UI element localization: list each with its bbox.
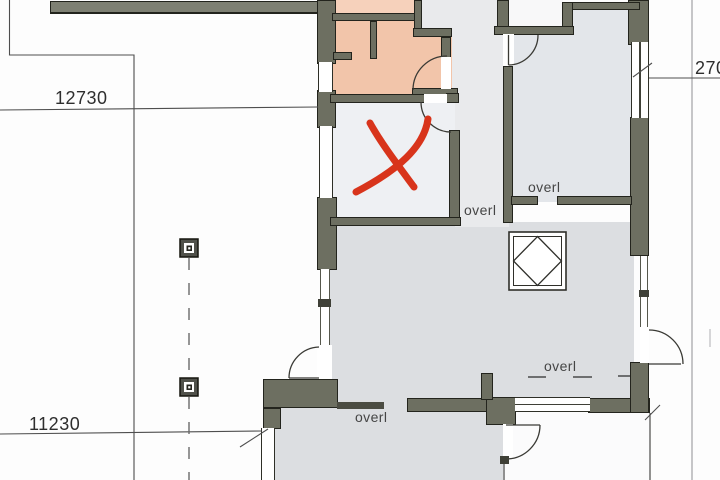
lintel-label-bottom-center: overl [355, 409, 387, 425]
site-line-top-left [10, 0, 135, 480]
door-arc-west [289, 347, 319, 378]
column-symbol-1 [180, 239, 198, 257]
door-arc-entrance [413, 56, 447, 90]
corner-tick-bottom-right [645, 405, 660, 420]
jamb-dash-bottom-right [500, 456, 509, 464]
door-arc-upper-right [509, 35, 539, 65]
column-symbol-2 [180, 378, 198, 396]
lintel-dashes [528, 376, 630, 377]
skylight-symbol [509, 232, 566, 290]
red-x-annotation [356, 119, 428, 192]
dimension-label-top: 12730 [55, 88, 108, 109]
lintel-label-upper-right: overl [528, 179, 560, 195]
dimension-label-bottom: 11230 [29, 414, 80, 435]
lintel-label-corridor: overl [464, 202, 496, 218]
floor-plan-canvas: 12730 11230 270 overl overl overl overl [0, 0, 720, 480]
dimension-line-top [0, 107, 318, 110]
linework-overlay [0, 0, 720, 480]
dimension-tick-right [633, 63, 652, 77]
dimension-label-right: 270 [695, 58, 720, 79]
lintel-label-lower-right: overl [544, 358, 576, 374]
door-arc-east [649, 330, 683, 364]
door-arc-bottom-right [506, 425, 540, 459]
